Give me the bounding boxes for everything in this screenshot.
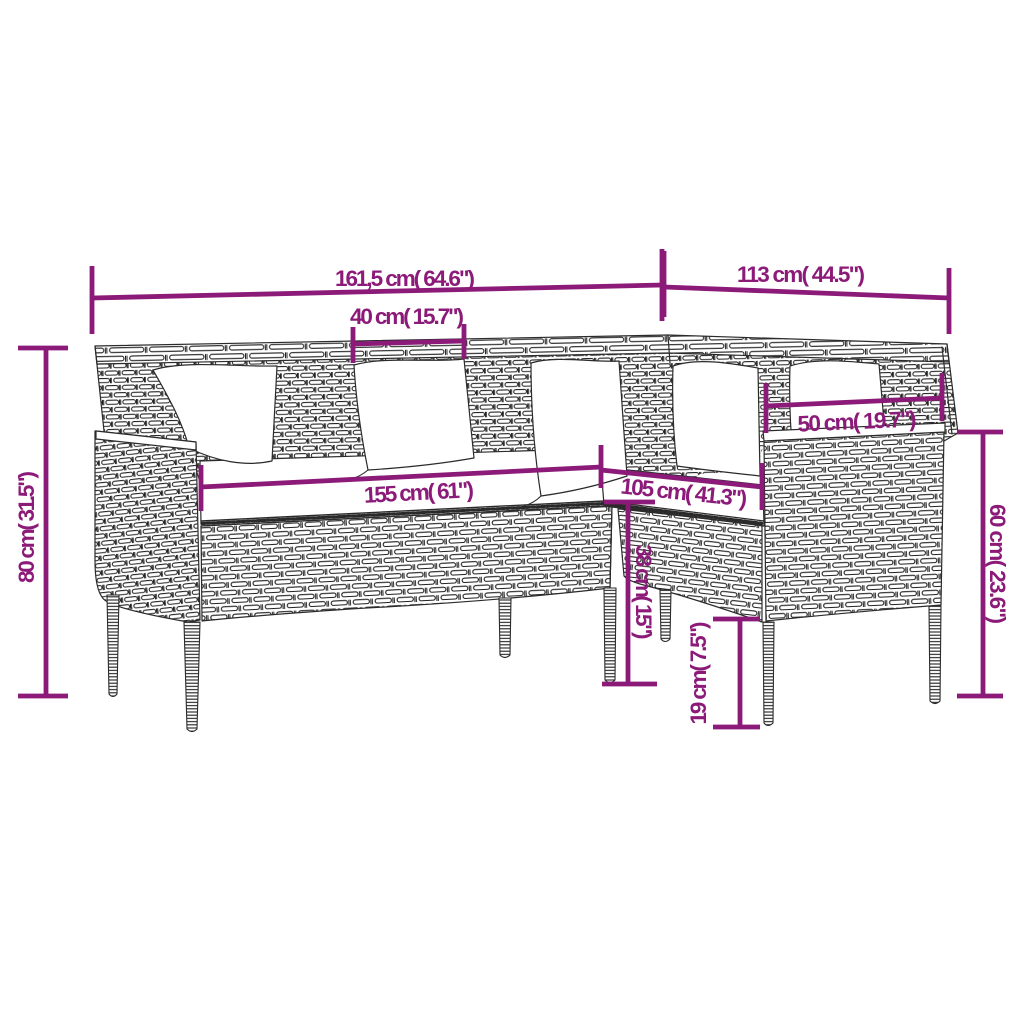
svg-text:60 cm( 23.6"): 60 cm( 23.6"): [985, 504, 1010, 624]
svg-text:19 cm( 7.5"): 19 cm( 7.5"): [686, 622, 711, 725]
svg-text:161,5 cm( 64.6"): 161,5 cm( 64.6"): [335, 266, 475, 291]
svg-text:40 cm( 15.7"): 40 cm( 15.7"): [350, 304, 464, 329]
svg-text:80 cm( 31.5"): 80 cm( 31.5"): [14, 471, 39, 583]
svg-text:50 cm( 19.7"): 50 cm( 19.7"): [797, 406, 917, 436]
svg-text:113 cm( 44.5"): 113 cm( 44.5"): [737, 262, 865, 287]
svg-text:38 cm( 15"): 38 cm( 15"): [631, 545, 656, 640]
